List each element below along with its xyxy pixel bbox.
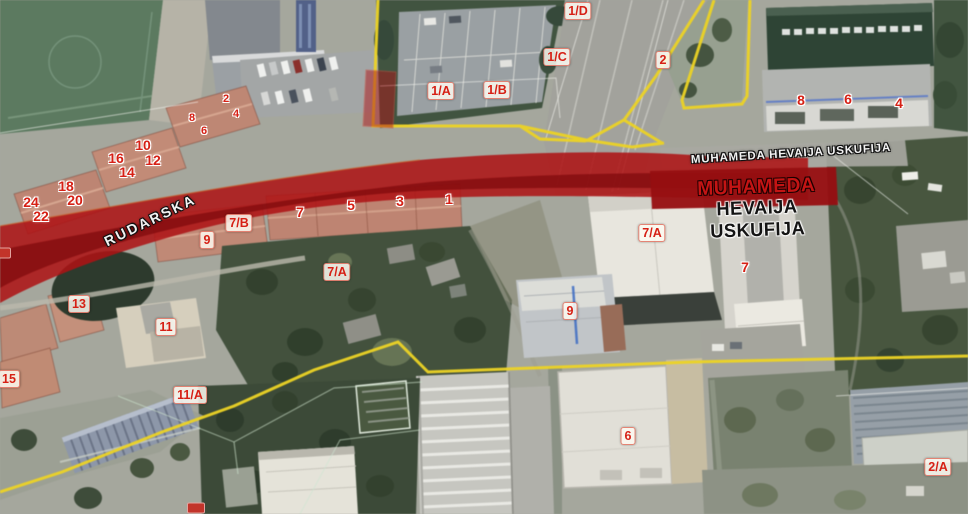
- parcel-number-label: 2: [656, 51, 671, 69]
- parcel-number-label: 8: [189, 112, 195, 124]
- parcel-number-label: 12: [145, 152, 161, 168]
- title-line-1: MUHAMEDA: [697, 174, 816, 200]
- northeast-buildings: [762, 0, 968, 132]
- parcel-number-label: 11/A: [173, 386, 207, 404]
- parcel-number-label: 2/A: [924, 458, 951, 476]
- parcel-number-label: 7/A: [323, 263, 350, 281]
- parcel-number-label: 8: [797, 92, 805, 108]
- parcel-number-label: 9: [200, 231, 215, 249]
- parcel-number-label: 9: [563, 302, 578, 320]
- parcel-number-label: 11: [155, 318, 176, 336]
- parcel-number-label: 20: [67, 192, 83, 208]
- parcel-number-label: 4: [233, 108, 239, 120]
- parcel-number-label: 7: [741, 259, 749, 275]
- parcel-number-label: 13: [68, 295, 90, 313]
- highlighted-street-title: MUHAMEDA HEVAIJA USKUFIJA: [697, 174, 817, 244]
- parcel-number-label: 3: [396, 193, 404, 209]
- parcel-number-label: 6: [201, 125, 207, 137]
- parcel-number-label: 15: [0, 370, 20, 388]
- parcel-number-label: 1/B: [483, 81, 510, 99]
- parcel-number-label: 5: [347, 197, 355, 213]
- parcel-number-label: 1/D: [564, 2, 591, 20]
- parcel-number-label: 6: [621, 427, 636, 445]
- parcel-number-label: 14: [119, 164, 135, 180]
- parcel-number-label: 6: [844, 91, 852, 107]
- parcel-number-label: [187, 503, 205, 514]
- parcel-number-label: 2: [223, 93, 229, 105]
- parcel-number-label: 7: [296, 204, 304, 220]
- parcel-number-label: 10: [135, 137, 151, 153]
- parcel-number-label: 1: [445, 191, 453, 207]
- parcel-number-label: 4: [895, 95, 903, 111]
- parcel-number-label: 22: [33, 208, 49, 224]
- parcel-number-label: 7/A: [638, 224, 665, 242]
- parcel-number-label: 1/C: [543, 48, 570, 66]
- highlight-parcel-box: [363, 70, 396, 128]
- parcel-number-label: [0, 248, 11, 259]
- map-viewport: RUDARSKA MUHAMEDA HEVAIJA USKUFIJA MUHAM…: [0, 0, 968, 514]
- aerial-basemap: [0, 0, 968, 514]
- parcel-number-label: 7/B: [225, 214, 252, 232]
- title-line-3: USKUFIJA: [698, 218, 817, 244]
- parcel-number-label: 1/A: [427, 82, 454, 100]
